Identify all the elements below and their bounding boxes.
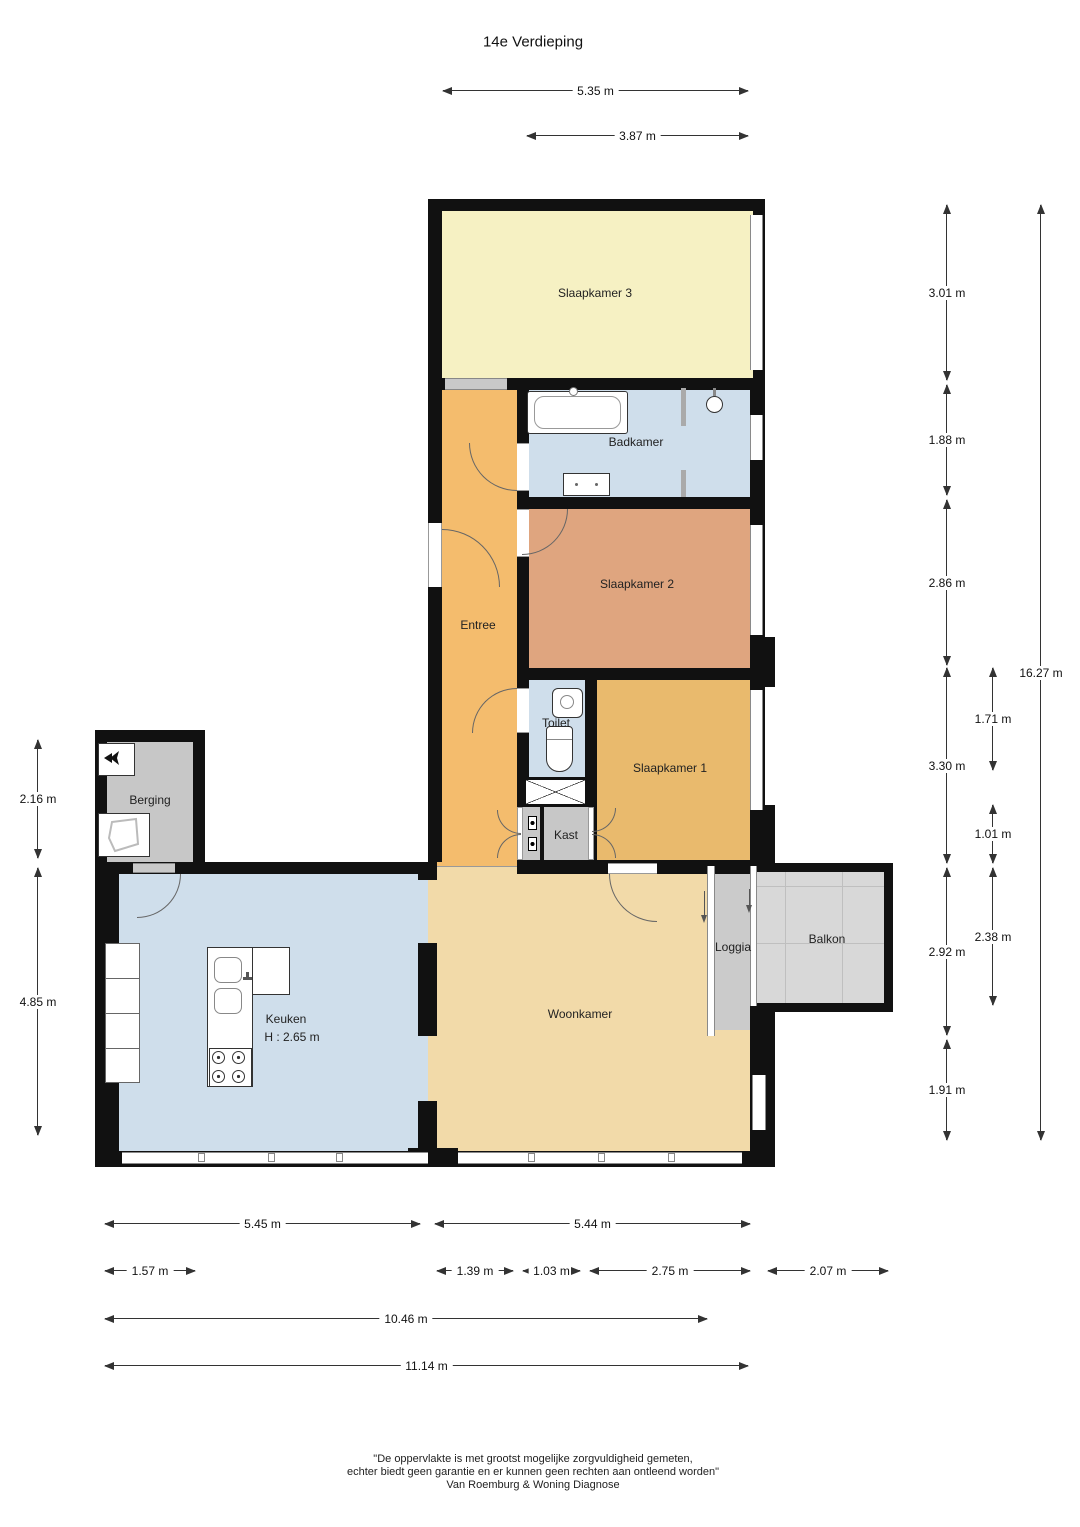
label-badkamer: Badkamer: [609, 435, 664, 449]
burner-icon: [212, 1051, 225, 1064]
dimension-line: 5.44 m: [435, 1223, 750, 1224]
dimension-label: 2.92 m: [924, 945, 971, 959]
floor-plan-page: 14e Verdieping: [0, 0, 1080, 1527]
dimension-label: 1.88 m: [924, 433, 971, 447]
window-badkamer: [750, 415, 763, 460]
washbasin-icon: [563, 473, 610, 496]
dimension-label: 1.57 m: [127, 1264, 174, 1278]
dimension-line: 10.46 m: [105, 1318, 707, 1319]
dimension-line: 5.35 m: [443, 90, 748, 91]
disclaimer-line-2: echter biedt geen garantie en er kunnen …: [347, 1466, 719, 1478]
burner-icon: [212, 1070, 225, 1083]
dimension-label: 11.14 m: [400, 1359, 452, 1373]
loggia-left-glass: [707, 866, 715, 1036]
dimension-line: 2.16 m: [37, 740, 38, 858]
dimension-line: 4.85 m: [37, 868, 38, 1135]
round-sink-icon: [706, 396, 723, 413]
window-mullion: [198, 1153, 205, 1162]
cabinet-divider: [105, 1048, 140, 1049]
window-slaapkamer-2: [750, 525, 763, 635]
dimension-line: 11.14 m: [105, 1365, 748, 1366]
dimension-label: 2.86 m: [924, 576, 971, 590]
dimension-label: 2.16 m: [15, 792, 62, 806]
window-mullion: [336, 1153, 343, 1162]
dimension-label: 5.44 m: [569, 1217, 616, 1231]
label-loggia: Loggia: [715, 940, 751, 954]
window-mullion: [598, 1153, 605, 1162]
dimension-line: 2.07 m: [768, 1270, 888, 1271]
burner-icon: [232, 1051, 245, 1064]
cabinet-divider: [105, 1013, 140, 1014]
label-slaapkamer-1: Slaapkamer 1: [633, 761, 707, 775]
wall-divider-stub: [418, 862, 437, 880]
shaft-icon: [523, 777, 588, 807]
wall-divider-pier-low: [418, 1101, 437, 1151]
ventilation-unit-icon: [98, 743, 135, 776]
wall-divider-pier: [418, 943, 437, 1036]
sink-bowl-icon: [214, 988, 242, 1014]
dimension-line: 1.71 m: [992, 668, 993, 770]
dimension-label: 5.35 m: [572, 84, 619, 98]
label-slaapkamer-2: Slaapkamer 2: [600, 577, 674, 591]
kitchen-counter-ext: [252, 947, 290, 995]
disclaimer-line-1: "De oppervlakte is met grootst mogelijke…: [373, 1453, 692, 1465]
label-keuken-height: H : 2.65 m: [264, 1030, 319, 1044]
window-mullion: [528, 1153, 535, 1162]
threshold-entree-woonkamer: [437, 862, 517, 874]
dimension-label: 1.01 m: [970, 827, 1017, 841]
boiler-icon: [528, 837, 537, 851]
door-opening-entrance: [428, 523, 442, 587]
sink-stem: [713, 388, 716, 396]
shower-partition: [681, 388, 686, 426]
dimension-line: 1.03 m: [523, 1270, 580, 1271]
label-keuken: Keuken: [266, 1012, 307, 1026]
dimension-line: 2.75 m: [590, 1270, 750, 1271]
dimension-label: 16.27 m: [1014, 666, 1067, 680]
dimension-label: 10.46 m: [379, 1312, 432, 1326]
shower-partition: [681, 470, 686, 497]
label-balkon: Balkon: [809, 932, 846, 946]
dimension-label: 1.71 m: [970, 712, 1017, 726]
dimension-line: 3.30 m: [946, 668, 947, 863]
dimension-line: 2.86 m: [946, 500, 947, 665]
kitchen-faucet-icon: [246, 972, 249, 980]
label-kast: Kast: [554, 828, 578, 842]
dimension-label: 3.01 m: [924, 286, 971, 300]
dimension-line: 5.45 m: [105, 1223, 420, 1224]
basin-tap-dot: [575, 483, 578, 486]
entry-arrow-icon: [749, 889, 750, 905]
dimension-label: 5.45 m: [239, 1217, 286, 1231]
label-entree: Entree: [460, 618, 495, 632]
window-mullion: [268, 1153, 275, 1162]
toilet-seat-line: [547, 739, 572, 740]
window-keuken-bottom: [122, 1152, 428, 1164]
label-woonkamer: Woonkamer: [548, 1007, 612, 1021]
bathtub-inner: [534, 396, 621, 429]
wall-right-pier-1: [765, 637, 775, 687]
window-woonkamer-right: [752, 1075, 766, 1130]
dimension-line: 3.87 m: [527, 135, 748, 136]
dimension-line: 16.27 m: [1040, 205, 1041, 1140]
toilet-bowl-icon: [546, 726, 573, 772]
dimension-label: 1.91 m: [924, 1083, 971, 1097]
basin-tap-dot: [595, 483, 598, 486]
burner-icon: [232, 1070, 245, 1083]
window-slaapkamer-3: [750, 215, 763, 370]
dimension-label: 3.87 m: [614, 129, 661, 143]
door-sill-berging: [133, 863, 175, 873]
dimension-line: 1.91 m: [946, 1040, 947, 1140]
dimension-label: 3.30 m: [924, 759, 971, 773]
door-opening-slaapkamer-1: [608, 863, 657, 874]
label-berging: Berging: [129, 793, 170, 807]
berging-fixture-icon: [98, 813, 150, 857]
door-opening-toilet: [517, 688, 529, 733]
window-slaapkamer-1: [750, 690, 763, 810]
dimension-line: 3.01 m: [946, 205, 947, 380]
door-opening-badkamer: [517, 443, 529, 491]
cabinet-divider: [105, 978, 140, 979]
dimension-label: 1.03 m: [528, 1264, 575, 1278]
window-mullion: [668, 1153, 675, 1162]
door-sill-slaapkamer-3: [445, 378, 507, 390]
label-toilet: Toilet: [542, 716, 570, 730]
label-slaapkamer-3: Slaapkamer 3: [558, 286, 632, 300]
page-title: 14e Verdieping: [483, 34, 583, 51]
sink-bowl-icon: [214, 957, 242, 983]
dimension-line: 1.01 m: [992, 805, 993, 863]
dimension-line: 1.39 m: [437, 1270, 513, 1271]
disclaimer-line-3: Van Roemburg & Woning Diagnose: [446, 1479, 619, 1491]
dimension-label: 2.07 m: [805, 1264, 852, 1278]
dimension-label: 4.85 m: [15, 995, 62, 1009]
boiler-icon: [528, 816, 537, 830]
bath-faucet-icon: [569, 387, 578, 396]
kast-cell-left: [523, 807, 540, 860]
dimension-line: 1.57 m: [105, 1270, 195, 1271]
loggia-right-glass: [750, 866, 757, 1006]
dimension-label: 2.38 m: [970, 930, 1017, 944]
dimension-label: 2.75 m: [647, 1264, 694, 1278]
dimension-label: 1.39 m: [452, 1264, 499, 1278]
wall-right-pier-2: [765, 805, 775, 870]
entry-arrow-icon: [704, 891, 705, 915]
dimension-line: 2.92 m: [946, 868, 947, 1035]
dimension-line: 2.38 m: [992, 868, 993, 1005]
toilet-basin-bowl: [560, 695, 574, 709]
dimension-line: 1.88 m: [946, 385, 947, 495]
